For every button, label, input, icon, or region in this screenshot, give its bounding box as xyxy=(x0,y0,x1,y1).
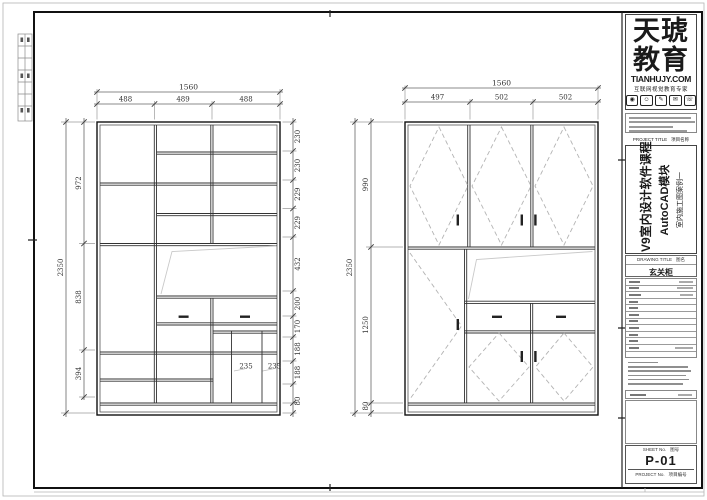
course-line-1: V9室内设计软件课程 xyxy=(637,148,654,252)
brand-name-line2: 教育 xyxy=(626,47,696,73)
field-row xyxy=(626,312,696,319)
drawing-title-cn: 图名 xyxy=(676,257,685,263)
dim-label: 488 xyxy=(119,96,132,104)
drawing-title-box: DRAWING TITLE 图名 玄关柜 xyxy=(625,255,697,277)
drawing-title-label-row: DRAWING TITLE 图名 xyxy=(626,256,696,265)
desk-flap-line xyxy=(161,246,277,294)
desk-flap-line xyxy=(469,252,593,300)
project-title-row: PROJECT TITLE 项目名称 xyxy=(625,135,697,144)
dim-label: 230 xyxy=(294,159,302,172)
course-title-box: V9室内设计软件课程 AutoCAD模块 室内施工图案例一 xyxy=(625,145,697,254)
plan-scale-row xyxy=(625,390,697,399)
door-handle-icon xyxy=(521,215,523,226)
badge-pencil-icon: ✎ xyxy=(655,95,667,106)
sheet-frame xyxy=(3,3,704,496)
dim-label: 489 xyxy=(176,96,189,104)
brand-name-line1: 天琥 xyxy=(626,18,696,44)
brand-tagline: 互联网视觉教育专家 xyxy=(626,85,696,93)
drawing-title-label: DRAWING TITLE xyxy=(637,257,672,263)
left-cabinet-drawing xyxy=(97,122,280,415)
field-row xyxy=(626,292,696,299)
dim-label: 2350 xyxy=(346,259,354,277)
field-row xyxy=(626,299,696,306)
badge-mail-icon: ✉ xyxy=(669,95,681,106)
dim-label: 229 xyxy=(294,188,302,201)
dimension-ticks xyxy=(352,85,600,415)
dim-label: 488 xyxy=(239,96,252,104)
dim-label: 2350 xyxy=(57,259,65,277)
dim-label: 502 xyxy=(495,94,508,102)
note-line xyxy=(628,375,686,377)
drawer-handle-icon xyxy=(240,316,250,318)
right-cabinet-outline xyxy=(405,122,598,415)
fold-strip xyxy=(18,34,32,121)
course-line-2: AutoCAD模块 xyxy=(656,148,672,252)
dim-label: 235 xyxy=(239,363,252,371)
dim-label: 497 xyxy=(431,94,444,102)
brand-domain: TIANHUJY.COM xyxy=(626,74,696,84)
dim-label: 170 xyxy=(294,320,302,333)
badge-eye-icon: ◉ xyxy=(626,95,638,106)
project-no-label: PROJECT No. xyxy=(635,472,664,478)
blank-panel xyxy=(625,400,697,444)
field-row xyxy=(626,332,696,339)
field-row xyxy=(626,325,696,332)
notes-block xyxy=(625,359,697,389)
drawer-handle-icon xyxy=(492,316,502,318)
door-handle-icon xyxy=(457,215,459,226)
field-row xyxy=(626,305,696,312)
dim-label: 502 xyxy=(559,94,572,102)
dim-label: 235 xyxy=(268,363,281,371)
info-text-line xyxy=(629,121,695,123)
right-cabinet-partitions xyxy=(408,125,595,405)
dim-label: 1560 xyxy=(179,82,198,91)
dim-label: 432 xyxy=(294,257,302,270)
course-line-3: 室内施工图案例一 xyxy=(675,148,685,252)
field-row xyxy=(626,279,696,286)
cad-sheet-page: { "left_drawing": { "top_total": "1560",… xyxy=(0,0,707,500)
door-drawer-handles xyxy=(457,215,566,363)
info-text-line xyxy=(629,130,687,132)
info-text-line xyxy=(629,126,673,128)
note-line xyxy=(628,383,683,385)
dim-label: 80 xyxy=(294,397,302,406)
brand-logo: 天琥 教育 TIANHUJY.COM 互联网视觉教育专家 ◉ ☺ ✎ ✉ ☏ xyxy=(625,14,697,110)
field-row xyxy=(626,286,696,293)
fold-marks xyxy=(28,10,626,491)
project-no-cn: 项目编号 xyxy=(669,472,687,478)
dim-label: 1560 xyxy=(492,78,511,87)
right-cabinet-dimensions: 1560 497 502 502 990 1250 80 2350 xyxy=(346,78,601,417)
dim-label: 200 xyxy=(294,297,302,310)
dim-label: 1250 xyxy=(362,316,370,334)
dimension-lines xyxy=(355,88,601,417)
dim-label: 972 xyxy=(75,176,83,189)
signature-fields-table xyxy=(625,278,697,358)
note-line xyxy=(628,379,689,381)
brand-badge-row: ◉ ☺ ✎ ✉ ☏ xyxy=(626,95,696,106)
company-info-block xyxy=(625,113,697,133)
drawer-handle-icon xyxy=(556,316,566,318)
right-cabinet-drawing xyxy=(405,122,598,415)
drawer-handles xyxy=(179,316,250,318)
left-cabinet-outline xyxy=(97,122,280,415)
drawer-handle-icon xyxy=(179,316,189,318)
project-no-label-row: PROJECT No. 项目编号 xyxy=(626,471,696,478)
field-row xyxy=(626,319,696,326)
door-swing-dashed-lines xyxy=(410,127,593,401)
divider xyxy=(628,469,694,470)
door-handle-icon xyxy=(534,351,536,362)
dim-label: 230 xyxy=(294,130,302,143)
door-handle-icon xyxy=(534,215,536,226)
cad-drawing-canvas: 1560 488 489 488 972 838 394 2350 230 23… xyxy=(0,0,707,500)
dim-label: 188 xyxy=(294,342,302,355)
dim-label: 990 xyxy=(362,178,370,191)
drawing-title-value: 玄关柜 xyxy=(626,267,696,278)
note-line xyxy=(628,370,691,372)
sheet-no-label-row: SHEET No. 图号 xyxy=(626,446,696,453)
rotated-text-wrap: V9室内设计软件课程 AutoCAD模块 室内施工图案例一 xyxy=(626,146,696,253)
badge-face-icon: ☺ xyxy=(640,95,652,106)
info-text-line xyxy=(629,117,691,119)
dim-label: 229 xyxy=(294,216,302,229)
field-row xyxy=(626,338,696,345)
note-line xyxy=(628,362,658,364)
sheet-number-value: P-01 xyxy=(626,453,696,468)
dim-label: 838 xyxy=(75,290,83,303)
dim-label: 188 xyxy=(294,366,302,379)
badge-phone-icon: ☏ xyxy=(684,95,696,106)
left-cabinet-dimensions: 1560 488 489 488 972 838 394 2350 230 23… xyxy=(57,82,302,417)
note-line xyxy=(628,366,688,368)
field-row xyxy=(626,345,696,352)
sheet-number-box: SHEET No. 图号 P-01 PROJECT No. 项目编号 xyxy=(625,445,697,484)
title-block: 天琥 教育 TIANHUJY.COM 互联网视觉教育专家 ◉ ☺ ✎ ✉ ☏ P… xyxy=(623,12,702,488)
dimension-ticks xyxy=(63,89,295,415)
dim-label: 80 xyxy=(362,402,370,411)
dim-label: 394 xyxy=(75,366,83,380)
project-title-cn: 项目名称 xyxy=(671,137,689,143)
door-handle-icon xyxy=(457,319,459,330)
door-handle-icon xyxy=(521,351,523,362)
